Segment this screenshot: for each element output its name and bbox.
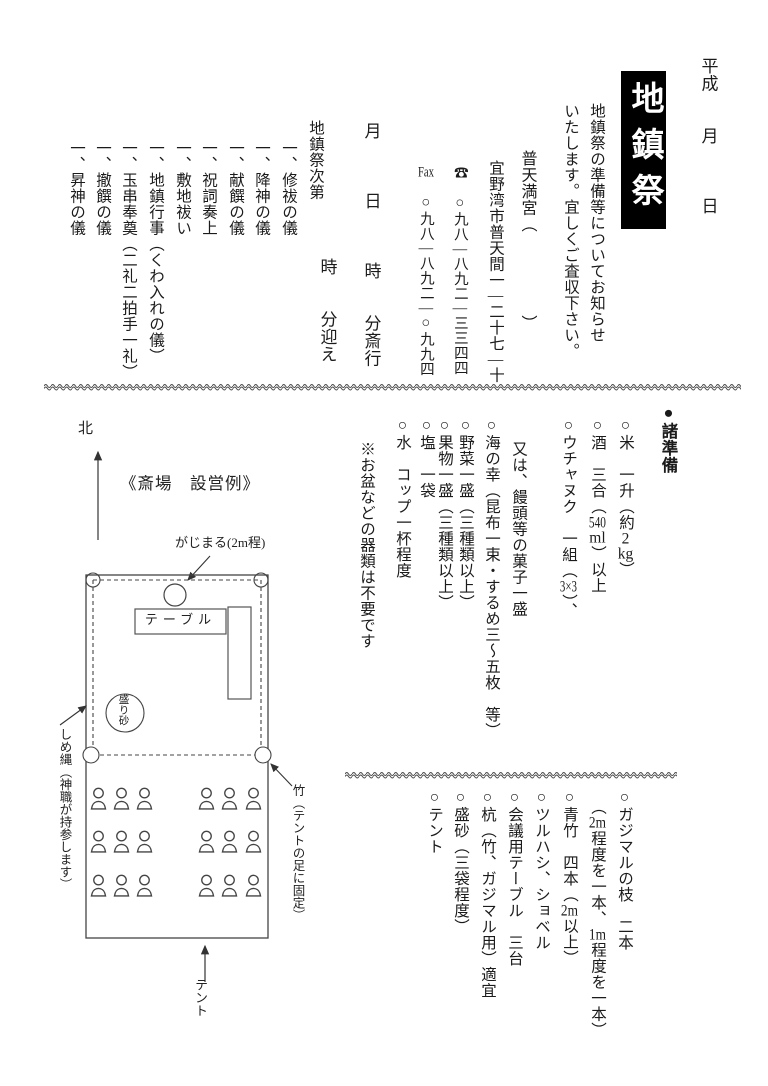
prep-item-uchanuku-alt: 又は、饅頭等の菓子一盛: [510, 441, 526, 617]
ceremony-item: 一、祝詞奏上: [200, 140, 216, 236]
equip-item-tables: ○会議用テーブル 三台: [506, 789, 522, 967]
equip-item-tools: ○ツルハシ、ショベル: [533, 789, 549, 951]
attendee-icon: [91, 875, 105, 896]
equip-item-stakes: ○杭（竹、ガジマル用）適宜: [479, 789, 495, 999]
prep-item-seafood: ○海の幸（昆布一束・するめ三～五枚 等）: [483, 417, 499, 739]
prep-item-rice: ○米 一升（約2kg）: [617, 417, 633, 578]
intro-line-2: いたします。宜しくご査収下さい。: [562, 103, 578, 359]
bamboo-label: 竹（テントの足に固定）: [291, 784, 304, 922]
attendee-icon: [199, 788, 213, 809]
prep-item-salt: ○塩 一袋: [418, 417, 434, 499]
attendee-icon: [246, 788, 260, 809]
tent-label: テント: [194, 978, 207, 1017]
equip-item-gajumaru-note: （2m程度を一本、1m程度を一本）: [589, 799, 605, 1038]
north-label: 北: [78, 422, 93, 437]
table-label: テーブル: [135, 613, 226, 626]
diagram-title: 《斎場 設営例》: [120, 476, 260, 493]
attendee-icon: [114, 831, 128, 852]
ceremony-item: 一、玉串奉奠（二礼二拍手一礼）: [120, 140, 136, 380]
attendee-icon: [246, 875, 260, 896]
wavy-divider-top: [44, 382, 741, 392]
equip-item-gajumaru: ○ガジマルの枝 二本: [616, 789, 632, 951]
shrine-address: 宜野湾市普天間一―二十七―十: [487, 160, 503, 383]
attendee-icon: [91, 831, 105, 852]
attendee-icon: [199, 875, 213, 896]
site-layout-diagram: 北 《斎場 設営例》 がじまる(2m程) テーブル 盛り砂 しめ縄（神職が持参し…: [18, 408, 340, 1073]
ceremony-item: 一、撤饌の儀: [94, 140, 110, 236]
attendee-icon: [137, 788, 151, 809]
equip-item-tent: ○テント: [426, 789, 442, 855]
shrine-name: 普天満宮（ ）: [518, 150, 534, 332]
schedule-line-2: 時 分迎え: [318, 258, 336, 363]
attendee-icon: [137, 831, 151, 852]
gajumaru-tree-marker: [164, 584, 186, 606]
ceremony-item: 一、昇神の儀: [68, 140, 84, 236]
ceremony-item: 一、降神の儀: [253, 140, 269, 236]
attendee-icon: [91, 788, 105, 809]
rope-label: しめ縄（神職が持参します）: [58, 728, 71, 891]
ceremony-item: 一、修祓の儀: [280, 140, 296, 236]
attendee-icon: [199, 831, 213, 852]
schedule-line-1: 月 日 時 分斎行: [362, 122, 380, 367]
ceremony-item: 一、地鎮行事（くわ入れの儀）: [147, 140, 163, 364]
prep-item-vegetables: ○野菜一盛（三種類以上）: [457, 417, 473, 611]
attendee-icon: [114, 875, 128, 896]
attendee-icon: [114, 788, 128, 809]
equip-item-sand: ○盛砂（三袋程度）: [452, 789, 468, 935]
corner-bamboo-marker: [83, 747, 99, 763]
attendee-icon: [246, 831, 260, 852]
preparations-header: ●諸準備: [660, 403, 677, 474]
ceremony-item: 一、敷地祓い: [174, 140, 190, 236]
attendee-icon: [222, 875, 236, 896]
document-title: 地鎮祭: [621, 71, 666, 229]
prep-note-no-trays: ※お盆などの器類は不要です: [358, 441, 374, 649]
corner-bamboo-marker: [255, 747, 271, 763]
attendee-icon: [137, 875, 151, 896]
attendee-icon: [222, 788, 236, 809]
offering-table-vertical: [228, 607, 251, 699]
rope-pointer-arrow: [60, 706, 86, 725]
shrine-phone: ☎ ○九八―八九二―三三四四: [452, 165, 467, 376]
prep-item-fruit: ○果物一盛（三種類以上）: [436, 417, 452, 611]
gajumaru-label: がじまる(2m程): [175, 536, 265, 549]
ceremony-item: 一、献饌の儀: [227, 140, 243, 236]
attendee-icon: [222, 831, 236, 852]
shrine-fax: Fax ○九八―八九二―○九九四: [418, 165, 433, 377]
ceremony-order-header: 地鎮祭次第: [307, 120, 323, 200]
sand-mound-label: 盛り砂: [117, 694, 128, 726]
prep-item-sake: ○酒 三合（540ml）以上: [589, 417, 605, 594]
bamboo-pointer-arrow: [271, 764, 292, 786]
wavy-divider-bottom: [345, 770, 677, 780]
prep-item-uchanuku: ○ウチャヌク 一組（3×3）、: [560, 417, 576, 618]
intro-line-1: 地鎮祭の準備等についてお知らせ: [588, 103, 604, 343]
equip-item-bamboo: ○青竹 四本（2m以上）: [561, 789, 577, 966]
jichinsai-notice-document: 平成 月 日 地鎮祭 地鎮祭の準備等についてお知らせ いたします。宜しくご査収下…: [0, 0, 768, 1086]
gajumaru-pointer-arrow: [188, 556, 210, 580]
date-line: 平成 月 日: [699, 57, 717, 215]
prep-item-water: ○水 コップ一杯程度: [394, 417, 410, 579]
